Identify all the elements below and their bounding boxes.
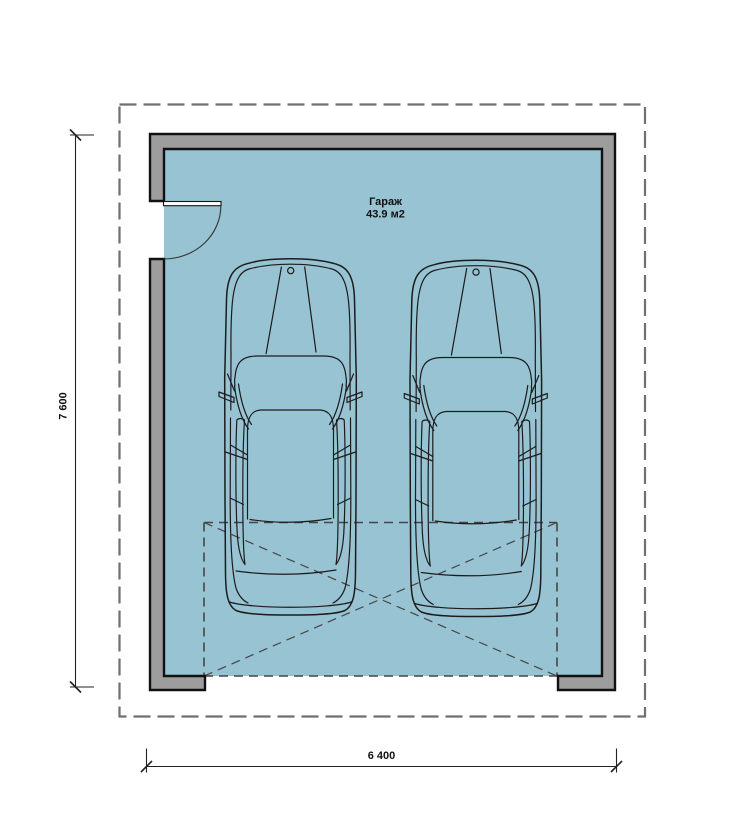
svg-text:6 400: 6 400 — [368, 750, 396, 762]
svg-text:Гараж: Гараж — [369, 196, 402, 208]
svg-text:7 600: 7 600 — [58, 392, 70, 420]
svg-text:43.9 м2: 43.9 м2 — [366, 209, 405, 221]
